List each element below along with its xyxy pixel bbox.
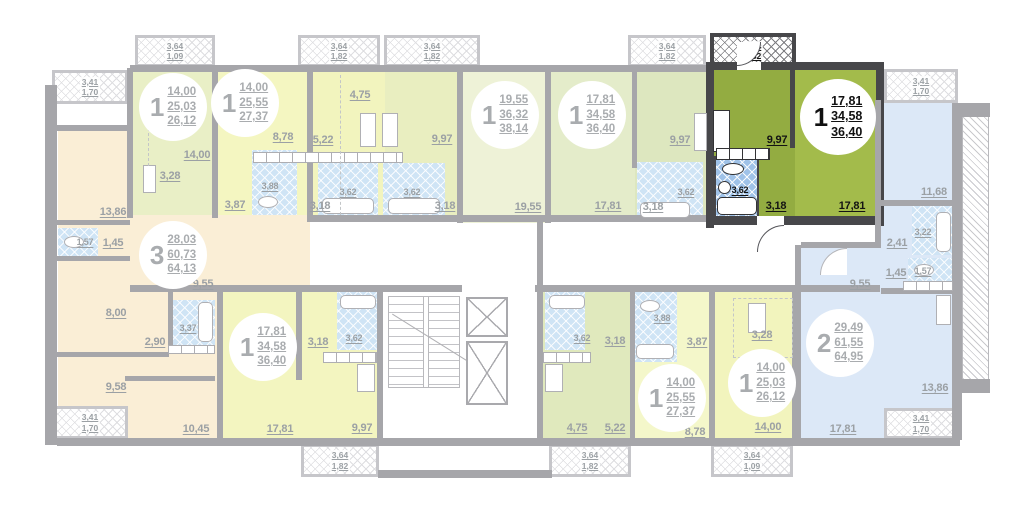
wall <box>127 68 133 218</box>
sink-icon <box>718 181 731 194</box>
unit-total-area: 34,58 <box>257 340 286 354</box>
room-area-label: 3,88 <box>262 181 279 191</box>
unit-rooms-count: 1 <box>814 104 828 130</box>
balcony: 3,641,82 <box>628 35 706 67</box>
kitchen-counter <box>168 345 215 354</box>
wall <box>57 438 960 446</box>
wall <box>545 65 551 223</box>
elevator-shaft <box>466 297 508 337</box>
unit-total-area: 61,55 <box>834 336 863 350</box>
wall <box>632 68 637 168</box>
wall <box>881 200 952 206</box>
stove-icon <box>936 295 951 325</box>
stove-icon <box>545 364 563 392</box>
room-area-label: 10,45 <box>183 423 210 435</box>
wall <box>52 125 130 131</box>
room-area-label: 3,87 <box>225 199 246 211</box>
wall-highlighted <box>790 68 795 148</box>
room-area-label: 4,75 <box>350 89 371 101</box>
room-area-label: 9,58 <box>106 381 127 393</box>
unit-total-area: 60,73 <box>167 248 196 262</box>
balcony: 3,641,82 <box>549 444 631 477</box>
balcony: 3,641,09 <box>711 444 793 477</box>
room-area-label: 3,18 <box>643 201 664 213</box>
unit-info-circle[interactable]: 1 14,0025,0326,12 <box>139 73 207 141</box>
unit-total-area: 36,32 <box>499 108 528 122</box>
unit-full-area: 38,14 <box>499 122 528 136</box>
wall <box>57 352 169 357</box>
room-area-label: 3,62 <box>404 187 421 197</box>
room-area-label-highlighted: 3,62 <box>732 185 749 195</box>
room-area-label: 17,81 <box>830 423 857 435</box>
unit-info-circle[interactable]: 1 19,5536,3238,14 <box>471 81 539 149</box>
room-area-label-highlighted: 17,81 <box>839 200 866 212</box>
balcony: 3,641,82 <box>298 35 380 67</box>
wall-highlighted <box>706 62 884 70</box>
toilet-icon <box>258 196 278 208</box>
room-area-label: 11,68 <box>921 186 947 198</box>
unit-total-area: 34,58 <box>586 108 615 122</box>
wall <box>296 290 302 380</box>
wall-highlighted <box>706 216 884 225</box>
kitchen-counter <box>716 148 770 160</box>
unit-total-area: 34,58 <box>831 109 862 125</box>
kitchen-counter <box>543 352 591 363</box>
elevator-shaft <box>466 341 508 405</box>
room-area-label: 17,81 <box>267 423 294 435</box>
staircase <box>388 296 460 388</box>
room-area-label: 3,28 <box>160 170 181 182</box>
wall <box>960 379 990 393</box>
balcony: 3,411,70 <box>52 70 128 104</box>
room-area-label: 2,90 <box>145 336 166 348</box>
wall <box>377 288 383 443</box>
unit-info-circle[interactable]: 1 17,8134,5836,40 <box>229 313 297 381</box>
unit-info-circle[interactable]: 1 14,0025,0326,12 <box>728 349 796 417</box>
unit-total-area: 25,55 <box>239 96 268 110</box>
unit-rooms-count: 1 <box>150 94 164 120</box>
wall <box>57 220 130 225</box>
balcony: 3,411,70 <box>884 69 958 103</box>
room-area-label: 9,97 <box>352 422 373 434</box>
room-area-label: 3,22 <box>915 227 932 237</box>
unit-rooms-count: 2 <box>817 330 831 356</box>
unit-living-area: 14,00 <box>666 376 695 390</box>
unit-full-area: 36,40 <box>257 354 286 368</box>
stove-icon <box>382 113 398 147</box>
kitchen-counter <box>903 281 953 291</box>
room-area-label: 3,88 <box>654 313 671 323</box>
unit-full-area: 36,40 <box>586 122 615 136</box>
stove-icon <box>360 113 376 147</box>
unit-rooms-count: 1 <box>240 334 254 360</box>
unit-rooms-count: 1 <box>569 102 583 128</box>
unit-living-area: 17,81 <box>257 325 286 339</box>
wall <box>57 256 130 261</box>
unit-full-area: 27,37 <box>239 110 268 124</box>
unit-full-area: 36,40 <box>831 125 862 141</box>
room-area-label: 3,28 <box>752 329 773 341</box>
bathtub-icon <box>717 197 757 215</box>
wall <box>457 65 463 223</box>
room-area-label: 1,45 <box>103 237 124 249</box>
room-area-label: 3,62 <box>340 187 357 197</box>
unit-living-area: 29,49 <box>834 321 863 335</box>
balcony: 3,411,70 <box>52 406 128 439</box>
wall <box>125 376 215 381</box>
stove-icon <box>694 113 707 151</box>
unit-info-circle[interactable]: 1 14,0025,5527,37 <box>211 69 279 137</box>
room-area-label: 9,97 <box>670 134 691 146</box>
room-area-label: 9,55 <box>850 278 871 290</box>
wall <box>378 470 552 478</box>
balcony: 3,641,09 <box>135 35 215 67</box>
balcony: 3,411,70 <box>884 408 958 439</box>
room-area-label: 3,18 <box>310 200 331 212</box>
unit-total-area: 25,55 <box>666 391 695 405</box>
room-area-label: 5,22 <box>313 134 334 146</box>
unit-living-area: 14,00 <box>756 361 785 375</box>
room-area-label: 3,18 <box>435 200 456 212</box>
bathtub-icon <box>936 212 951 252</box>
balcony: 3,641,82 <box>301 444 379 477</box>
adjacent-section-hatch <box>962 103 989 393</box>
unit-total-area: 25,03 <box>167 100 196 114</box>
room-area-label: 3,37 <box>180 323 197 333</box>
unit-rooms-count: 3 <box>150 242 164 268</box>
unit-info-circle[interactable]: 2 29,4961,5564,95 <box>806 309 874 377</box>
room-area-label: 3,62 <box>678 187 695 197</box>
room-area-label: 19,55 <box>515 201 542 213</box>
wall <box>217 290 223 443</box>
room-area-label: 14,00 <box>755 421 782 433</box>
room-area-label: 1,57 <box>915 266 932 276</box>
unit-rooms-count: 1 <box>482 102 496 128</box>
room-area-label: 3,18 <box>605 335 626 347</box>
room-area-label: 14,00 <box>184 149 211 161</box>
unit-living-area: 17,81 <box>831 94 862 110</box>
bathtub-icon <box>340 295 376 309</box>
bathtub-icon <box>636 344 674 359</box>
room-area-label: 3,18 <box>308 336 329 348</box>
unit-rooms-count: 1 <box>222 90 236 116</box>
room-area-label: 1,57 <box>77 237 94 247</box>
room-area-label: 1,45 <box>886 267 907 279</box>
toilet-icon <box>722 163 744 175</box>
wall <box>709 290 715 443</box>
wall <box>801 242 875 248</box>
wall <box>537 222 543 443</box>
room-area-label-highlighted: 3,18 <box>766 200 787 212</box>
room-area-label-highlighted: 9,97 <box>767 134 788 146</box>
unit-living-area: 14,00 <box>239 81 268 95</box>
room-area-label: 8,78 <box>273 131 294 143</box>
kitchen-counter <box>253 152 403 163</box>
floor-plan: 3,641,09 3,641,82 3,641,82 3,641,82 3,64… <box>0 0 1024 512</box>
unit-full-area: 26,12 <box>167 114 196 128</box>
stove-icon <box>713 110 730 152</box>
apartment-region-3room[interactable] <box>58 130 130 443</box>
room-area-label: 9,97 <box>432 133 453 145</box>
unit-rooms-count: 1 <box>739 370 753 396</box>
unit-living-area: 14,00 <box>167 85 196 99</box>
room-area-label: 3,62 <box>574 333 591 343</box>
kitchen-counter <box>323 352 377 363</box>
room-area-label: 13,86 <box>922 382 949 394</box>
room-area-label: 8,00 <box>106 307 127 319</box>
unit-full-area: 27,37 <box>666 405 695 419</box>
toilet-icon <box>640 300 660 312</box>
room-area-label: 13,86 <box>100 206 127 218</box>
room-area-label: 3,87 <box>687 336 708 348</box>
room-area-label: 2,41 <box>887 237 908 249</box>
balcony: 3,641,82 <box>384 35 480 67</box>
unit-full-area: 64,95 <box>834 350 863 364</box>
door-arc <box>757 225 784 252</box>
room-area-label: 4,75 <box>567 422 588 434</box>
wall <box>875 100 881 248</box>
stove-icon <box>357 364 375 392</box>
room-area-label: 3,62 <box>346 333 363 343</box>
unit-living-area: 17,81 <box>586 93 615 107</box>
unit-total-area: 25,03 <box>756 376 785 390</box>
unit-full-area: 64,13 <box>167 262 196 276</box>
unit-info-circle[interactable]: 3 28,0360,7364,13 <box>139 221 207 289</box>
bathtub-icon <box>388 198 440 214</box>
corridor-opening <box>462 285 535 292</box>
room-area-label: 5,22 <box>605 422 626 434</box>
unit-info-circle-highlighted[interactable]: 1 17,8134,5836,40 <box>800 79 876 155</box>
door-gap <box>757 216 784 225</box>
wall <box>630 290 635 443</box>
unit-rooms-count: 1 <box>649 385 663 411</box>
unit-living-area: 28,03 <box>167 233 196 247</box>
unit-info-circle[interactable]: 1 17,8134,5836,40 <box>558 81 626 149</box>
unit-living-area: 19,55 <box>499 93 528 107</box>
unit-info-circle[interactable]: 1 14,0025,5527,37 <box>638 364 706 432</box>
wall <box>45 85 57 445</box>
bathtub-icon <box>198 302 213 342</box>
room-area-label: 17,81 <box>595 200 622 212</box>
bathtub-icon <box>549 295 585 309</box>
stove-icon <box>143 165 156 193</box>
wall <box>960 103 990 117</box>
unit-full-area: 26,12 <box>756 390 785 404</box>
